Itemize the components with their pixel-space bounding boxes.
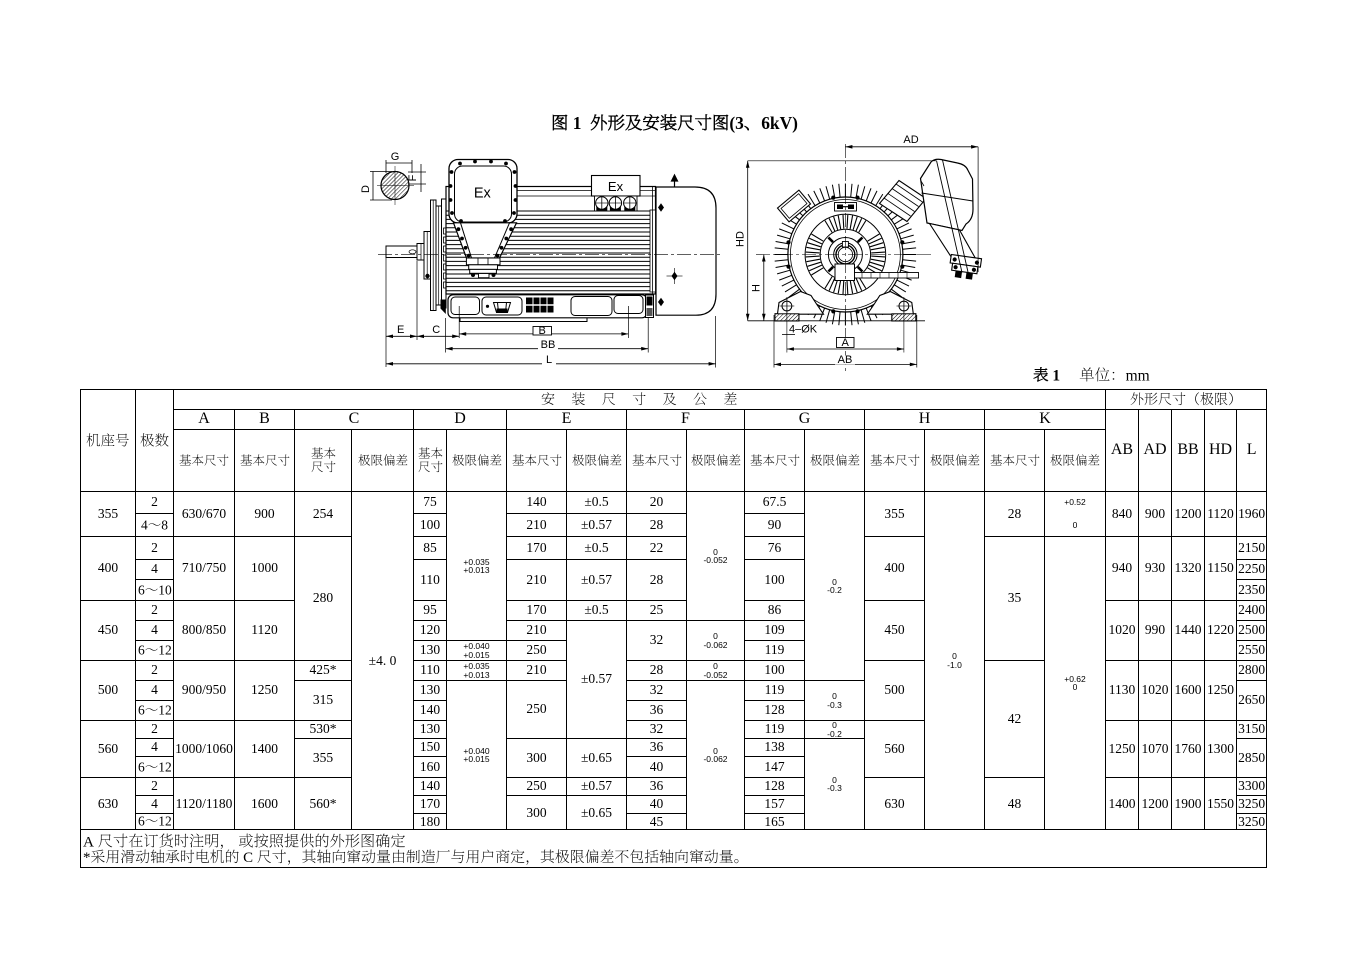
svg-text:12: 12 bbox=[158, 814, 172, 829]
svg-text:BB: BB bbox=[541, 339, 556, 351]
svg-text:*: * bbox=[83, 850, 90, 866]
svg-text:12: 12 bbox=[158, 643, 172, 658]
svg-text:A: A bbox=[83, 834, 94, 851]
svg-text:4: 4 bbox=[141, 518, 148, 533]
svg-text:4–ØK: 4–ØK bbox=[789, 324, 818, 336]
svg-text:A: A bbox=[842, 337, 850, 349]
svg-text:12: 12 bbox=[158, 760, 172, 775]
svg-text:12: 12 bbox=[158, 703, 172, 718]
svg-text:D: D bbox=[360, 185, 372, 193]
svg-text:F: F bbox=[407, 174, 419, 181]
svg-text:AB: AB bbox=[838, 354, 853, 366]
svg-text:6: 6 bbox=[138, 814, 145, 829]
svg-text:10: 10 bbox=[158, 583, 172, 598]
svg-text:AD: AD bbox=[903, 134, 918, 146]
svg-text:E: E bbox=[397, 324, 404, 336]
svg-text:Ex: Ex bbox=[608, 179, 624, 194]
svg-text:6: 6 bbox=[138, 643, 145, 658]
svg-text:G: G bbox=[391, 151, 400, 163]
svg-text:L: L bbox=[546, 354, 552, 366]
svg-text:6: 6 bbox=[138, 760, 145, 775]
svg-text:C: C bbox=[243, 850, 253, 866]
svg-text:C: C bbox=[432, 324, 440, 336]
svg-text:6: 6 bbox=[138, 583, 145, 598]
svg-text:6: 6 bbox=[138, 703, 145, 718]
svg-text:Ex: Ex bbox=[474, 186, 492, 202]
svg-text:HD: HD bbox=[735, 231, 747, 247]
svg-text:H: H bbox=[751, 284, 763, 292]
svg-text:B: B bbox=[539, 325, 546, 337]
svg-text:8: 8 bbox=[161, 518, 168, 533]
